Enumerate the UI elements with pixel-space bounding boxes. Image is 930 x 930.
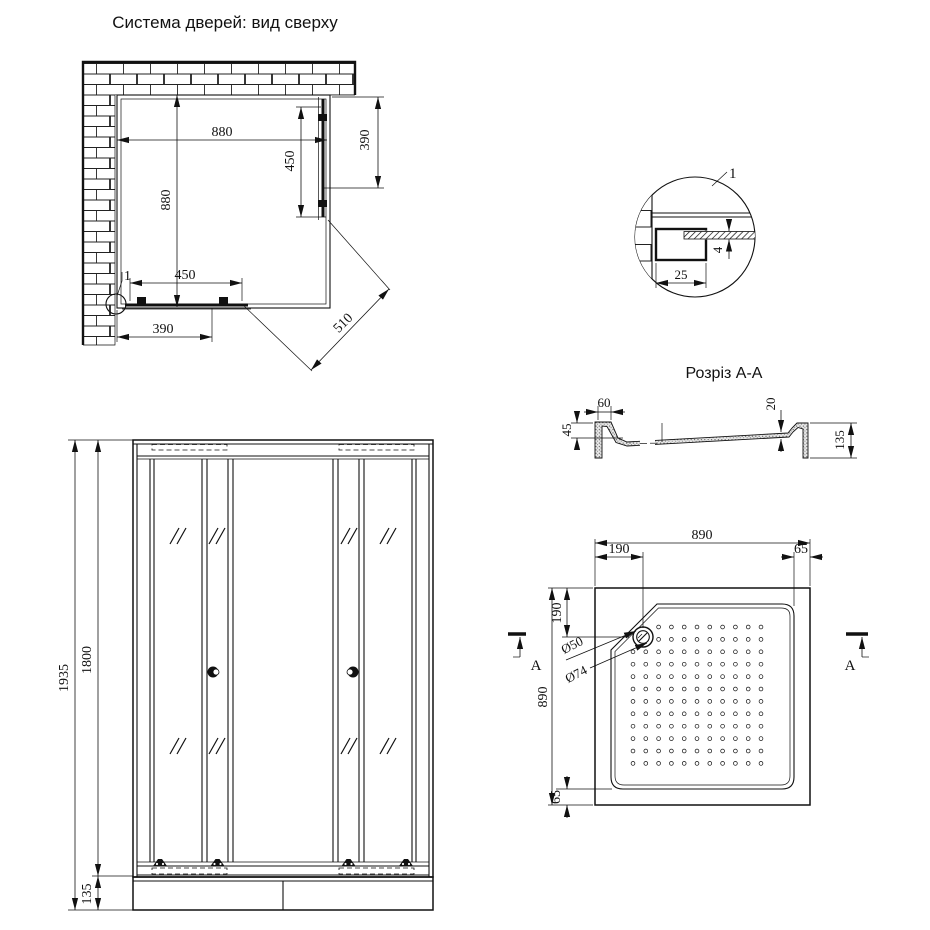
tray-outer-edge — [595, 588, 810, 805]
dim-label-135-front: 135 — [80, 884, 95, 905]
anti-slip-dots — [631, 625, 763, 765]
detail-view: 25 4 1 — [628, 166, 756, 304]
dim-label-45: 45 — [559, 424, 574, 437]
section-title: Розріз А-А — [686, 365, 763, 382]
tray-dimensions: 890 190 65 890 190 65 Ø5 — [536, 528, 823, 818]
section-marker-right: A — [845, 634, 869, 674]
door-roller-clamp — [318, 114, 327, 121]
dim-label-1935: 1935 — [57, 664, 72, 692]
door-handles — [208, 667, 359, 678]
dim-label-880-horizontal: 880 — [212, 125, 233, 140]
detail-view-content — [628, 170, 756, 304]
section-marker-left-label: A — [531, 658, 542, 674]
top-view: Система дверей: вид сверху — [83, 13, 390, 371]
top-track-guides — [152, 445, 414, 875]
dim-label-390-right: 390 — [358, 130, 373, 151]
door-roller-clamp — [318, 200, 327, 207]
dim-label-190-top: 190 — [609, 542, 630, 557]
drawing-svg: Система дверей: вид сверху — [0, 0, 930, 930]
door-rollers — [153, 859, 413, 866]
dim-label-4: 4 — [710, 246, 725, 253]
top-view-title: Система дверей: вид сверху — [112, 13, 338, 32]
dim-label-890-left: 890 — [536, 687, 551, 708]
glass-hatch-marks — [170, 528, 396, 754]
dim-label-450-bottom: 450 — [175, 268, 196, 283]
bottom-door-top-view — [122, 297, 251, 309]
front-view-dimensions: 1935 1800 135 — [57, 440, 133, 910]
dim-label-20: 20 — [763, 398, 778, 411]
detail-view-label: 1 — [729, 166, 737, 182]
front-frame — [133, 440, 433, 877]
dim-label-190-left: 190 — [550, 603, 565, 624]
dim-label-510-diagonal: 510 — [331, 311, 356, 336]
base-apron — [133, 877, 433, 910]
section-marker-right-label: A — [845, 658, 856, 674]
dim-label-60: 60 — [598, 395, 611, 410]
technical-drawing-sheet: Система дверей: вид сверху — [0, 0, 930, 930]
front-view: 1935 1800 135 — [57, 440, 433, 910]
drain — [633, 627, 653, 647]
detail-leader: 1 — [712, 166, 737, 186]
front-frame-lines — [133, 444, 433, 877]
dim-label-65-bottom-left: 65 — [549, 790, 564, 804]
glass-panel-section — [684, 232, 756, 240]
door-roller-clamp — [219, 297, 228, 304]
section-marker-left: A — [508, 634, 542, 674]
tray-view: 890 190 65 890 190 65 Ø5 — [508, 528, 869, 818]
tray-section-shell — [595, 422, 808, 458]
dim-label-1800: 1800 — [80, 646, 95, 674]
section-view: Розріз А-А 60 45 20 — [559, 365, 857, 458]
dim-label-890-top: 890 — [692, 528, 713, 543]
detail-dimensions: 25 4 — [656, 221, 729, 288]
dim-label-450-right: 450 — [283, 151, 298, 172]
dim-label-135-section: 135 — [832, 430, 847, 450]
top-view-dimensions: 880 880 450 390 450 390 — [117, 95, 390, 371]
right-door-top-view — [318, 97, 327, 220]
door-roller-clamp — [137, 297, 146, 304]
door-panels — [150, 459, 416, 862]
detail-brick-wall — [628, 170, 652, 304]
dim-label-390-bottom: 390 — [153, 322, 174, 337]
detail-ref-label: 1 — [124, 269, 131, 284]
dim-label-880-vertical: 880 — [159, 190, 174, 211]
dim-label-drain-74: Ø74 — [563, 662, 590, 686]
dim-label-65-top-right: 65 — [794, 542, 808, 557]
dim-label-25: 25 — [675, 267, 688, 282]
